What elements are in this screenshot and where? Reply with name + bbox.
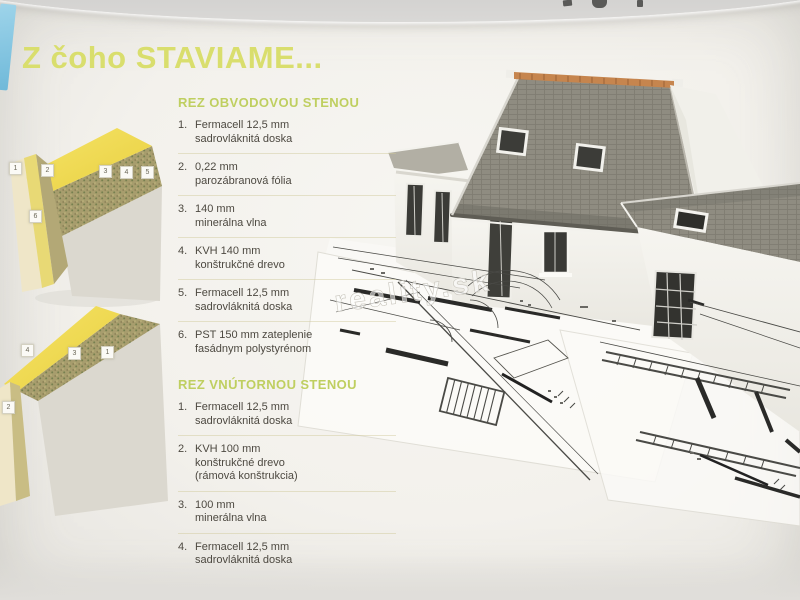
list-item: 1. Fermacell 12,5 mmsadrovláknitá doska <box>178 119 396 154</box>
section-exterior-wall: REZ OBVODOVOU STENOU 1. Fermacell 12,5 m… <box>178 95 396 363</box>
layer-chip: 1 <box>101 346 114 359</box>
layer-chip: 4 <box>21 344 34 357</box>
item-line: konštrukčné drevo <box>195 457 298 471</box>
item-line: minerálna vlna <box>195 512 267 526</box>
front-window <box>539 231 572 277</box>
item-line: 0,22 mm <box>195 161 292 175</box>
item-line: fasádnym polystyrénom <box>195 343 312 357</box>
item-line: KVH 100 mm <box>195 443 298 457</box>
item-number: 4. <box>178 245 195 272</box>
list-item: 3. 140 mmminerálna vlna <box>178 203 396 238</box>
list-item: 5. Fermacell 12,5 mmsadrovláknitá doska <box>178 287 396 322</box>
layer-chip: 1 <box>9 162 22 175</box>
item-number: 1. <box>178 119 195 146</box>
item-number: 5. <box>178 287 195 314</box>
layer-chip: 2 <box>41 164 54 177</box>
item-line: PST 150 mm zateplenie <box>195 329 312 343</box>
wing-skylight <box>675 210 707 231</box>
item-line: KVH 140 mm <box>195 245 285 259</box>
item-line: sadrovláknitá doska <box>195 554 292 568</box>
item-line: Fermacell 12,5 mm <box>195 541 292 555</box>
item-line: sadrovláknitá doska <box>195 301 292 315</box>
item-number: 4. <box>178 541 195 568</box>
roof-window <box>575 144 605 170</box>
item-line: Fermacell 12,5 mm <box>195 401 292 415</box>
materials-column: REZ OBVODOVOU STENOU 1. Fermacell 12,5 m… <box>178 95 396 575</box>
item-number: 6. <box>178 329 195 356</box>
lattice-window <box>652 271 697 340</box>
item-line: konštrukčné drevo <box>195 259 285 273</box>
item-number: 3. <box>178 203 195 230</box>
exterior-wall-art <box>2 116 170 314</box>
list-item: 4. Fermacell 12,5 mmsadrovláknitá doska <box>178 541 396 575</box>
layer-chip: 6 <box>29 210 42 223</box>
list-item: 6. PST 150 mm zatepleniefasádnym polysty… <box>178 329 396 363</box>
layer-chip: 3 <box>68 347 81 360</box>
exterior-wall-diagram: 1 2 3 4 5 6 <box>2 116 170 314</box>
layer-chip: 4 <box>120 166 133 179</box>
section-heading: REZ OBVODOVOU STENOU <box>178 95 396 110</box>
interior-wall-art <box>0 296 172 524</box>
interior-wall-diagram: 4 3 1 2 <box>0 296 172 524</box>
item-line: sadrovláknitá doska <box>195 133 292 147</box>
list-item: 1. Fermacell 12,5 mmsadrovláknitá doska <box>178 401 396 436</box>
item-line: 100 mm <box>195 499 267 513</box>
layer-chip: 3 <box>99 165 112 178</box>
list-item: 2. 0,22 mmparozábranová fólia <box>178 161 396 196</box>
item-number: 1. <box>178 401 195 428</box>
item-line: Fermacell 12,5 mm <box>195 287 292 301</box>
item-line: Fermacell 12,5 mm <box>195 119 292 133</box>
list-item: 2. KVH 100 mmkonštrukčné drevo(rámová ko… <box>178 443 396 492</box>
layer-chip: 2 <box>2 401 15 414</box>
item-number: 2. <box>178 443 195 484</box>
item-line: sadrovláknitá doska <box>195 415 292 429</box>
item-line: 140 mm <box>195 203 267 217</box>
item-number: 3. <box>178 499 195 526</box>
section-interior-wall: REZ VNÚTORNOU STENOU 1. Fermacell 12,5 m… <box>178 377 396 575</box>
brochure-page: { "page": { "title": "Z čoho STAVIAME...… <box>0 0 800 600</box>
layer-chip: 5 <box>141 166 154 179</box>
section-heading: REZ VNÚTORNOU STENOU <box>178 377 396 392</box>
item-line: parozábranová fólia <box>195 175 292 189</box>
item-line: minerálna vlna <box>195 217 267 231</box>
roof-window <box>498 128 528 154</box>
item-line: (rámová konštrukcia) <box>195 470 298 484</box>
list-item: 4. KVH 140 mmkonštrukčné drevo <box>178 245 396 280</box>
item-number: 2. <box>178 161 195 188</box>
list-item: 3. 100 mmminerálna vlna <box>178 499 396 534</box>
